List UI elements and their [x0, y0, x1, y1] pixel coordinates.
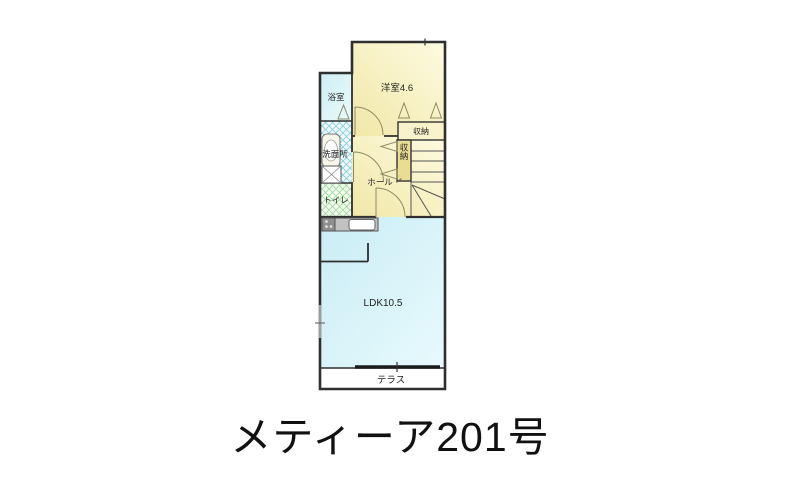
kitchen-counter	[322, 218, 378, 231]
floor-plan-page: 洋室4.6 浴室 洗面所 トイレ ホール 収納 収納 LDK10.5 テラス メ…	[0, 0, 800, 488]
plan-title: メティーア201号	[0, 403, 780, 463]
label-closet-side: 収納	[399, 142, 409, 161]
washing-machine-icon	[322, 166, 341, 183]
label-closet-upper: 収納	[413, 126, 429, 136]
room-ldk	[320, 217, 445, 368]
label-bathroom: 浴室	[327, 92, 345, 102]
label-terrace: テラス	[377, 375, 405, 386]
label-western-room: 洋室4.6	[381, 82, 413, 94]
stove-icon	[322, 218, 335, 231]
label-ldk: LDK10.5	[364, 298, 403, 309]
sink-icon	[349, 220, 375, 231]
label-hall: ホール	[367, 177, 393, 187]
label-washroom: 洗面所	[322, 149, 348, 159]
label-toilet: トイレ	[323, 195, 349, 205]
